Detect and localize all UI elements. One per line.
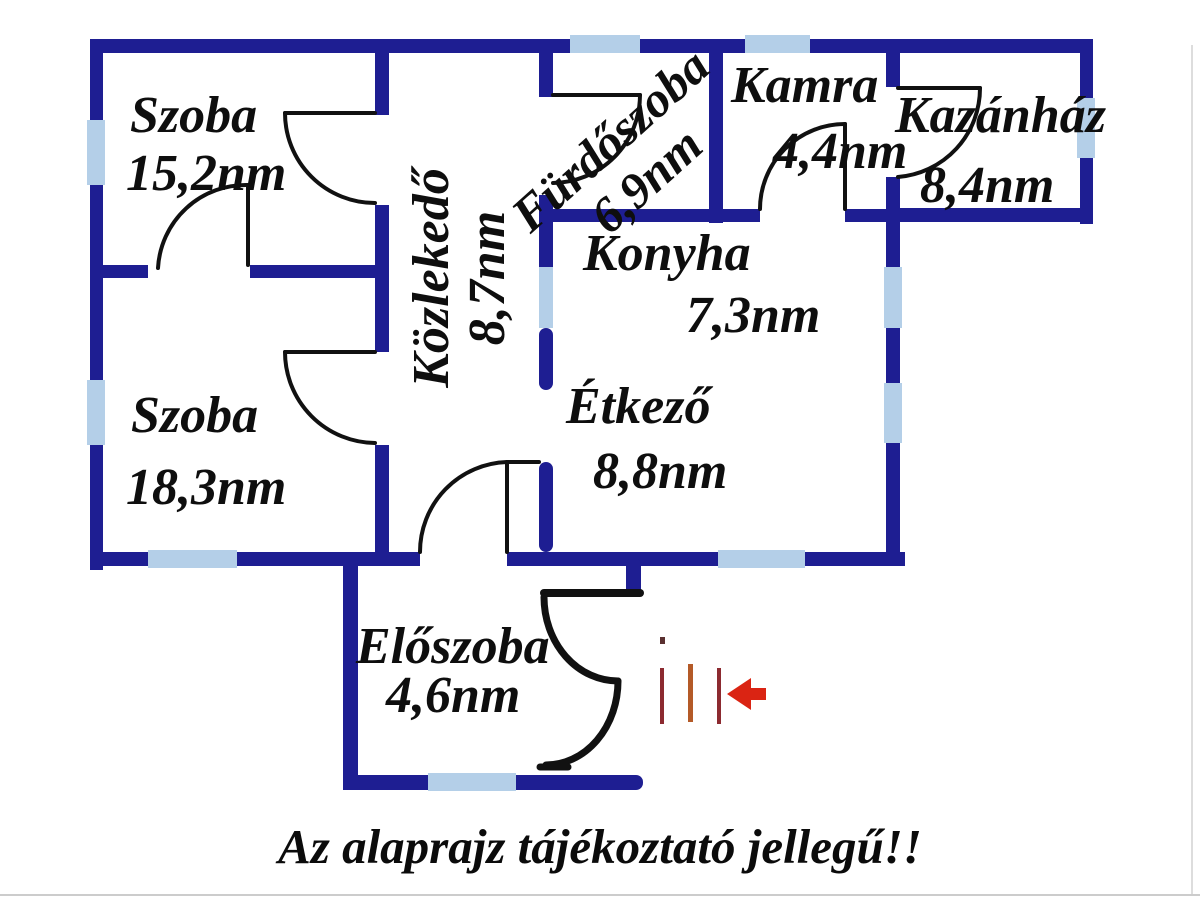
- wall-a-1: [375, 53, 389, 115]
- window-etkezo-right: [884, 383, 902, 443]
- room-label-szoba1-area: 15,2nm: [126, 148, 286, 200]
- wall-b-4: [539, 328, 553, 390]
- wall-kamra-bottom-2: [845, 209, 887, 222]
- wall-left: [90, 39, 103, 570]
- room-label-kazanhaz-area: 8,4nm: [920, 160, 1054, 212]
- room-label-eloszoba-name: Előszoba: [356, 621, 550, 673]
- entrance-door: [540, 593, 640, 767]
- room-label-eloszoba-area: 4,6nm: [386, 670, 520, 722]
- wall-b-5: [539, 462, 553, 552]
- door-szoba2-corridor: [285, 352, 375, 443]
- window-konyha-right: [884, 267, 902, 328]
- wall-d-2: [886, 177, 900, 224]
- floor-plan: Szoba 15,2nm Szoba 18,3nm Közlekedő 8,7n…: [0, 0, 1200, 900]
- wall-d-1: [886, 53, 900, 87]
- wall-kamra-bottom-1: [723, 209, 760, 222]
- room-label-kamra-name: Kamra: [731, 60, 878, 112]
- room-label-kozlekedo-name: Közlekedő: [403, 168, 460, 388]
- room-label-szoba2-name: Szoba: [131, 390, 258, 442]
- left-arrow-icon: [727, 678, 766, 710]
- window-eloszoba-bottom: [428, 773, 516, 791]
- room-label-kamra-area: 4,4nm: [773, 126, 907, 178]
- window-kamra-top: [745, 35, 810, 53]
- room-label-etkezo-name: Étkező: [566, 381, 710, 433]
- room-label-szoba1-name: Szoba: [130, 90, 257, 142]
- window-furdoszoba-top: [570, 35, 640, 53]
- room-label-kozlekedo: Közlekedő 8,7nm: [404, 168, 516, 388]
- wall-bottom-right: [507, 552, 905, 566]
- window-etkezo-bottom: [718, 550, 805, 568]
- window-szoba2-bottom: [148, 550, 237, 568]
- door-szoba1-corridor: [285, 113, 375, 203]
- window-szoba1-left: [87, 120, 105, 185]
- window-interior-wall-b: [539, 267, 553, 328]
- disclaimer-caption: Az alaprajz tájékoztató jellegű!!: [180, 818, 1020, 875]
- wall-szoba-divider-1: [90, 265, 148, 278]
- door-corridor-eloszoba: [420, 462, 539, 552]
- wall-a-2: [375, 205, 389, 352]
- wall-bottom-left: [90, 552, 420, 566]
- image-bottom-edge: [0, 894, 1200, 896]
- entrance-mark-dot: [660, 637, 665, 644]
- entrance-marks: [660, 637, 766, 724]
- room-label-konyha-name: Konyha: [583, 228, 751, 280]
- wall-szoba-divider-2: [250, 265, 389, 278]
- room-label-konyha-area: 7,3nm: [686, 290, 820, 342]
- image-right-edge: [1191, 45, 1193, 894]
- window-szoba2-left: [87, 380, 105, 445]
- entrance-mark-line-2: [688, 664, 693, 722]
- room-label-kazanhaz-name: Kazánház: [895, 90, 1106, 142]
- entrance-mark-line-1: [660, 668, 664, 724]
- room-label-etkezo-area: 8,8nm: [593, 446, 727, 498]
- room-label-szoba2-area: 18,3nm: [126, 462, 286, 514]
- entrance-mark-line-3: [717, 668, 721, 724]
- wall-a-3: [375, 445, 389, 552]
- wall-b-1: [539, 53, 553, 97]
